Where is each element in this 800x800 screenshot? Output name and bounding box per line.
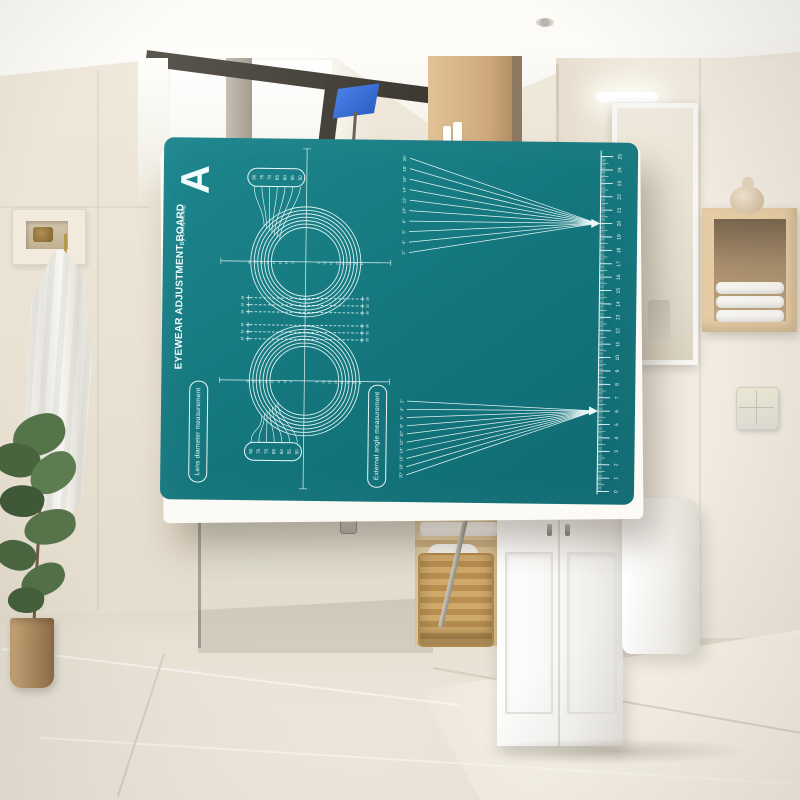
svg-text:21: 21 <box>617 207 623 213</box>
svg-text:12°: 12° <box>402 197 407 204</box>
svg-text:20: 20 <box>272 260 276 264</box>
svg-text:2°: 2° <box>399 399 404 403</box>
svg-text:24: 24 <box>617 167 623 173</box>
angle-pill-label: External angle measurement <box>373 392 381 480</box>
svg-text:15: 15 <box>278 261 282 265</box>
svg-text:35: 35 <box>354 261 358 265</box>
board-diagram: 8075706560555080757065605550551010151520… <box>160 137 638 505</box>
svg-text:35: 35 <box>252 379 256 383</box>
svg-text:35: 35 <box>253 260 257 264</box>
svg-text:2: 2 <box>614 463 620 466</box>
svg-text:5: 5 <box>614 423 620 426</box>
tile-seam <box>0 206 150 208</box>
bathroom-scene: 8075706560555080757065605550551010151520… <box>0 0 800 800</box>
svg-text:10: 10 <box>615 355 621 361</box>
svg-text:20: 20 <box>334 380 338 384</box>
svg-text:40: 40 <box>360 262 364 266</box>
svg-text:28: 28 <box>240 337 244 341</box>
crosshairs <box>218 148 392 490</box>
svg-text:32: 32 <box>366 304 370 308</box>
mirror-light <box>596 92 658 102</box>
svg-text:10: 10 <box>283 380 287 384</box>
svg-text:15: 15 <box>277 380 281 384</box>
folded-towel <box>716 282 784 294</box>
svg-text:7: 7 <box>614 396 620 399</box>
svg-text:15: 15 <box>616 288 622 294</box>
svg-text:20°: 20° <box>398 471 403 478</box>
svg-text:15: 15 <box>329 261 333 265</box>
svg-text:70: 70 <box>267 174 272 180</box>
knit-vase-ornament <box>730 186 764 214</box>
svg-text:60: 60 <box>279 449 284 455</box>
folded-towel <box>716 310 784 322</box>
svg-text:30: 30 <box>346 380 350 384</box>
svg-text:17: 17 <box>616 261 622 267</box>
svg-text:75: 75 <box>259 174 264 180</box>
svg-text:4°: 4° <box>401 240 406 244</box>
svg-text:6°: 6° <box>401 229 406 233</box>
svg-text:12: 12 <box>615 328 621 334</box>
wood-panel-edge <box>512 56 522 146</box>
svg-text:14°: 14° <box>402 186 407 193</box>
svg-text:18°: 18° <box>402 165 407 172</box>
svg-text:50: 50 <box>294 449 299 455</box>
svg-text:65: 65 <box>271 448 276 454</box>
svg-text:23: 23 <box>617 180 623 186</box>
svg-text:4°: 4° <box>399 407 404 411</box>
shower-glass-panel <box>198 502 433 648</box>
svg-text:25: 25 <box>617 154 623 160</box>
cabinet-door-panel-right <box>567 552 617 714</box>
svg-text:5: 5 <box>289 381 293 383</box>
svg-text:25: 25 <box>341 261 345 265</box>
svg-text:5: 5 <box>317 262 321 264</box>
svg-text:80: 80 <box>252 174 257 180</box>
svg-text:16°: 16° <box>398 455 403 462</box>
svg-text:40: 40 <box>247 260 251 264</box>
top-angle-fan: 20°18°16°14°12°10°8°6°4°2° <box>401 155 601 257</box>
svg-text:18: 18 <box>616 247 622 253</box>
ceiling-spotlight <box>536 18 554 27</box>
svg-text:28: 28 <box>366 297 370 301</box>
svg-text:16: 16 <box>616 274 622 280</box>
svg-text:55: 55 <box>287 449 292 455</box>
svg-text:32: 32 <box>240 330 244 334</box>
svg-text:60: 60 <box>282 175 287 181</box>
svg-text:65: 65 <box>275 174 280 180</box>
svg-text:50: 50 <box>298 175 303 181</box>
mirror-reflection-faucet <box>648 300 670 342</box>
svg-text:20: 20 <box>617 221 623 227</box>
svg-text:20: 20 <box>335 261 339 265</box>
door-handle-left <box>547 524 552 536</box>
svg-text:20°: 20° <box>402 155 407 162</box>
svg-text:36: 36 <box>240 323 244 327</box>
svg-text:10: 10 <box>284 261 288 265</box>
svg-text:35: 35 <box>352 380 356 384</box>
svg-text:30: 30 <box>258 379 262 383</box>
eyewear-adjustment-board: 8075706560555080757065605550551010151520… <box>150 133 647 523</box>
board-title: EYEWEAR ADJUSTMENT BOARD <box>173 243 186 369</box>
svg-text:0: 0 <box>613 490 619 493</box>
cabinet-shadow <box>480 738 750 764</box>
board-letter: A <box>169 153 222 206</box>
wood-wall-panel <box>428 56 514 146</box>
svg-text:32: 32 <box>365 331 369 335</box>
svg-text:3: 3 <box>614 450 620 453</box>
svg-text:10°: 10° <box>399 430 404 437</box>
svg-text:20: 20 <box>271 379 275 383</box>
folded-towel <box>716 296 784 308</box>
svg-text:32: 32 <box>241 303 245 307</box>
svg-text:36: 36 <box>365 324 369 328</box>
svg-text:22: 22 <box>617 194 623 200</box>
svg-text:40: 40 <box>246 379 250 383</box>
svg-text:70: 70 <box>264 448 269 454</box>
switch-divider <box>756 390 757 425</box>
svg-text:6: 6 <box>614 410 620 413</box>
svg-text:36: 36 <box>366 311 370 315</box>
door-handle-right <box>565 524 570 536</box>
svg-text:8°: 8° <box>401 219 406 223</box>
plant-pot <box>10 618 54 688</box>
svg-text:25: 25 <box>340 380 344 384</box>
svg-text:18°: 18° <box>398 463 403 470</box>
svg-text:75: 75 <box>256 448 261 454</box>
svg-text:10: 10 <box>321 380 325 384</box>
svg-text:19: 19 <box>616 234 622 240</box>
svg-text:5: 5 <box>291 262 295 264</box>
diameter-capsule-2: 80757065605550 <box>244 402 302 461</box>
svg-text:6°: 6° <box>399 415 404 419</box>
svg-text:28: 28 <box>365 338 369 342</box>
svg-text:14°: 14° <box>399 447 404 454</box>
svg-text:2°: 2° <box>401 250 406 254</box>
svg-text:8°: 8° <box>399 423 404 427</box>
svg-text:9: 9 <box>615 369 621 372</box>
svg-text:10: 10 <box>323 261 327 265</box>
svg-text:12°: 12° <box>399 439 404 446</box>
brass-fixture <box>33 227 53 242</box>
svg-text:16°: 16° <box>402 176 407 183</box>
cm-ruler: 0123456789101112131415161718192021222324… <box>597 150 624 494</box>
lens-diameter-pill: Lens diameter measurement <box>188 380 208 482</box>
svg-text:30: 30 <box>348 261 352 265</box>
svg-text:11: 11 <box>615 341 621 346</box>
svg-text:13: 13 <box>615 314 621 320</box>
svg-text:40: 40 <box>359 381 363 385</box>
svg-text:30: 30 <box>260 260 264 264</box>
svg-text:55: 55 <box>290 175 295 181</box>
svg-text:25: 25 <box>266 260 270 264</box>
cabinet-door-seam <box>558 506 560 746</box>
lens-pill-label: Lens diameter measurement <box>194 388 202 476</box>
svg-text:15: 15 <box>328 380 332 384</box>
external-angle-pill: External angle measurement <box>367 385 387 488</box>
svg-text:4: 4 <box>614 436 620 439</box>
svg-text:36: 36 <box>241 310 245 314</box>
svg-text:1: 1 <box>613 477 619 480</box>
svg-text:80: 80 <box>248 448 253 454</box>
svg-text:8: 8 <box>615 383 621 386</box>
svg-text:28: 28 <box>241 296 245 300</box>
bottom-angle-fan: 2°4°6°8°10°12°14°16°18°20° <box>398 399 598 481</box>
svg-text:14: 14 <box>616 301 622 307</box>
board-surface: 8075706560555080757065605550551010151520… <box>160 137 638 505</box>
knit-vase-top <box>742 177 754 190</box>
light-switch <box>736 387 779 430</box>
svg-text:10°: 10° <box>402 207 407 214</box>
cabinet-door-panel-left <box>505 552 553 714</box>
svg-text:25: 25 <box>264 379 268 383</box>
svg-text:5: 5 <box>315 381 319 383</box>
